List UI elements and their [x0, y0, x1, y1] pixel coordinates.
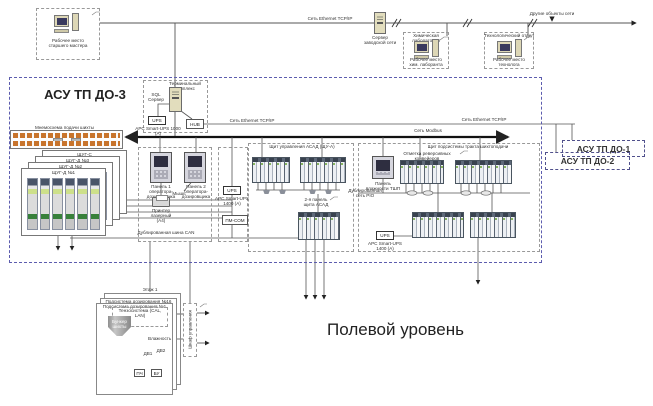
asu-do2-box: АСУ ТП ДО-2 [545, 152, 630, 170]
tower-icon [432, 39, 439, 57]
plc-rack [455, 160, 512, 184]
mimic-connector [53, 138, 63, 143]
asad-title: Щит управления АСАД (ЩУ-А) [252, 144, 352, 149]
plant-server-icon [374, 12, 386, 34]
diagram-canvas: М Рабочее место старшего мастера Сеть Et… [0, 0, 653, 406]
plc-rack [298, 212, 340, 240]
panel-keys-icon [376, 172, 390, 175]
panel-screen-icon [154, 156, 168, 167]
ethernet-mid-label-left: Сеть Ethernet TCP/IP [220, 118, 284, 123]
panel-keys-icon [188, 170, 202, 179]
terminal-ups-box: UPS [148, 116, 166, 125]
workstation-icon [52, 13, 82, 35]
keyboard-icon [54, 29, 69, 33]
cabinet-shug-d1: ЩУГ-Д №1 [21, 168, 106, 236]
sql-server-label: SQL Сервер [146, 92, 166, 102]
drive-module [77, 178, 88, 230]
freq-converter-box: ПЧ [134, 369, 145, 377]
motor-dv2-label: ДВ2 [155, 348, 167, 353]
panel-keys-icon [154, 170, 168, 179]
can-bus-label: Дублированная шина CAN [136, 230, 196, 235]
tech-workstation-label: Рабочее место технолога [487, 57, 531, 67]
hub-box: HUB [186, 119, 204, 129]
panel-screen-icon [188, 156, 202, 167]
screen-icon [500, 44, 510, 51]
panel-screen-icon [376, 160, 390, 171]
mouse-label: Мышь [172, 191, 186, 196]
operator-panel-2-icon [184, 152, 206, 183]
tshp-ups-model: APC Smart-UPS 1400 (А) [364, 241, 406, 251]
drive-module [90, 178, 101, 230]
plc-rack [470, 212, 516, 238]
printer-label: Принтер лазерный (А4) [143, 208, 179, 223]
tshp-ups-box: UPS [376, 231, 394, 240]
mid-ups-box: UPS [223, 186, 241, 195]
can-gateway-box: ПМ-СОМ [222, 215, 248, 225]
tshp-title: Щит подсистемы тракта шихтоподачи [398, 144, 538, 149]
field-control-cabinet-label: Шкаф управления [184, 305, 196, 355]
plant-server-label: Сервер заводской сети [360, 35, 400, 45]
mimic-connector [71, 138, 81, 143]
tower-icon [515, 39, 522, 57]
screen-icon [57, 18, 67, 25]
tech-dept-title: Технологический отдел [484, 33, 534, 38]
plc-rack [412, 212, 464, 238]
control-unit-box: БУ [151, 369, 162, 377]
tower-icon [72, 13, 79, 31]
master-workstation-label: Рабочее место старшего мастера [38, 38, 98, 48]
ethernet-mid-label-right: Сеть Ethernet TCP/IP [452, 117, 516, 122]
drive-module-row [27, 178, 100, 230]
cabinet-label: ЩУГ-Д №1 [22, 170, 105, 175]
drive-module [40, 178, 51, 230]
drive-module [27, 178, 38, 230]
sql-server-icon [169, 87, 182, 112]
drive-module [65, 178, 76, 230]
floor-label: Этаж 1 [135, 287, 165, 292]
tshp-panel-icon [372, 156, 394, 179]
ethernet-top-label: Сеть Ethernet TCP/IP [295, 16, 365, 21]
asad-panel2-label: 2-я панель щита АСАД [296, 197, 336, 207]
modbus-label: Сеть Modbus [406, 128, 450, 133]
operator-panel-1-icon [150, 152, 172, 183]
plc-rack [300, 157, 346, 183]
field-level-title: Полевой уровень [308, 320, 483, 339]
moisture-label: Влажность [148, 336, 172, 341]
drive-module [52, 178, 63, 230]
motor-dv1-label: ДВ1 [142, 351, 154, 356]
screen-icon [417, 44, 427, 51]
pio-label: Дублированная сеть PIO [346, 188, 384, 198]
plc-rack [400, 160, 444, 184]
terminal-ups-model: APC Smart-UPS 1000 (А) [134, 126, 182, 136]
asu-do3-title: АСУ ТП ДО-3 [30, 88, 140, 103]
other-objects-label: Другие объекты сети [527, 11, 577, 16]
chem-workstation-label: Рабочее место хим. лаборанта [404, 57, 448, 67]
mimic-rack [10, 130, 123, 149]
plc-rack [252, 157, 290, 183]
printer-icon [152, 197, 170, 207]
